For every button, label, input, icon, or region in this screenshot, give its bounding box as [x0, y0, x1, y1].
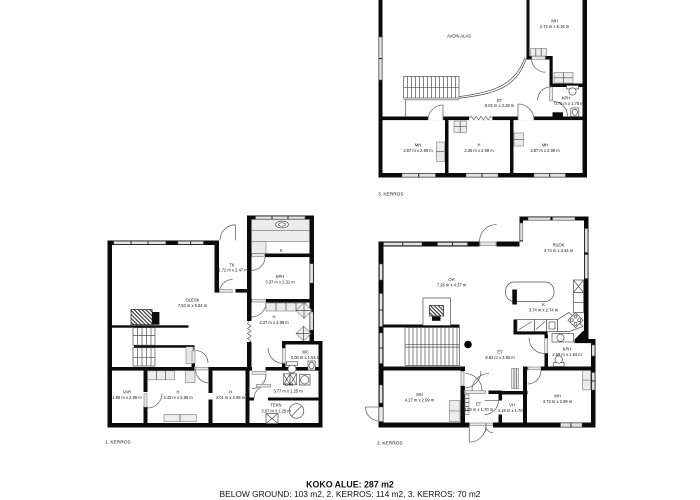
svg-text:OH: OH	[448, 277, 454, 282]
svg-text:3.74 m x 3.34 m: 3.74 m x 3.34 m	[544, 248, 574, 253]
svg-text:H: H	[229, 390, 232, 395]
svg-text:MH: MH	[416, 392, 422, 397]
svg-text:MH: MH	[542, 143, 548, 148]
svg-text:MH: MH	[554, 394, 560, 399]
svg-text:KPH: KPH	[276, 274, 284, 279]
svg-text:ET: ET	[497, 98, 503, 103]
svg-text:MH: MH	[415, 143, 421, 148]
svg-text:VH: VH	[509, 403, 515, 408]
svg-text:1. KERROS: 1. KERROS	[105, 440, 131, 446]
svg-text:5.02 m x 3.28 m: 5.02 m x 3.28 m	[485, 103, 515, 108]
svg-text:1.89 m x 2.98 m: 1.89 m x 2.98 m	[112, 395, 142, 400]
svg-text:8.82 m x 3.55 m: 8.82 m x 3.55 m	[485, 355, 515, 360]
svg-text:ET: ET	[497, 350, 503, 355]
svg-text:S: S	[280, 248, 283, 253]
svg-text:1.18 m x 1.70 m: 1.18 m x 1.70 m	[498, 408, 528, 413]
svg-text:AVOIN ALAS: AVOIN ALAS	[447, 34, 471, 39]
svg-text:3.37 m x 3.88 m: 3.37 m x 3.88 m	[259, 320, 289, 325]
svg-text:OLESK: OLESK	[186, 298, 200, 303]
svg-text:2.00 m x 1.54 m: 2.00 m x 1.54 m	[291, 355, 321, 360]
svg-text:KPH: KPH	[563, 347, 571, 352]
svg-text:RUOK: RUOK	[553, 243, 565, 248]
svg-text:7.26 m x 4.37 m: 7.26 m x 4.37 m	[437, 283, 467, 288]
svg-text:0.70 m x 1.76 m: 0.70 m x 1.76 m	[554, 101, 584, 106]
svg-text:1.72 m x 2.47 m: 1.72 m x 2.47 m	[218, 268, 248, 273]
svg-text:H: H	[177, 390, 180, 395]
svg-text:3.57 m x 2.99 m: 3.57 m x 2.99 m	[403, 148, 433, 153]
svg-text:2.02 m x 1.70 m: 2.02 m x 1.70 m	[464, 407, 494, 412]
svg-text:3.87 m x 2.99 m: 3.87 m x 2.99 m	[530, 148, 560, 153]
svg-text:WC: WC	[302, 350, 309, 355]
svg-text:ET: ET	[476, 402, 482, 407]
svg-text:K: K	[542, 302, 545, 307]
svg-text:2.59 m x 1.94 m: 2.59 m x 1.94 m	[552, 352, 582, 357]
svg-text:2.01 m x 2.98 m: 2.01 m x 2.98 m	[216, 395, 246, 400]
svg-text:3. KERROS: 3. KERROS	[378, 192, 404, 198]
svg-text:3.67 m x 1.29 m: 3.67 m x 1.29 m	[261, 409, 291, 414]
svg-text:7.53 m x 6.84 m: 7.53 m x 6.84 m	[178, 303, 208, 308]
svg-text:VAR: VAR	[123, 390, 131, 395]
svg-text:3.74 m x 2.74 m: 3.74 m x 2.74 m	[529, 308, 559, 313]
svg-text:2.72 m x 6.16 m: 2.72 m x 6.16 m	[540, 24, 570, 29]
svg-text:KHH: KHH	[285, 382, 294, 387]
svg-text:BELOW GROUND: 103 m2, 2. KERRO: BELOW GROUND: 103 m2, 2. KERROS: 114 m2,…	[220, 489, 481, 499]
svg-text:3.73 m x 2.99 m: 3.73 m x 2.99 m	[543, 399, 573, 404]
svg-text:TEKN: TEKN	[271, 403, 282, 408]
svg-text:H: H	[273, 315, 276, 320]
svg-text:MH: MH	[551, 19, 557, 24]
svg-text:3.77 m x 1.25 m: 3.77 m x 1.25 m	[273, 389, 303, 394]
svg-text:2. KERROS: 2. KERROS	[377, 441, 403, 447]
svg-text:4.27 m x 2.99 m: 4.27 m x 2.99 m	[405, 398, 435, 403]
svg-text:H: H	[478, 143, 481, 148]
svg-text:3.43 m x 2.98 m: 3.43 m x 2.98 m	[163, 395, 193, 400]
svg-text:3.36 m x 2.99 m: 3.36 m x 2.99 m	[464, 148, 494, 153]
svg-text:3.37 m x 2.31 m: 3.37 m x 2.31 m	[265, 280, 295, 285]
svg-text:KPH: KPH	[562, 95, 570, 100]
